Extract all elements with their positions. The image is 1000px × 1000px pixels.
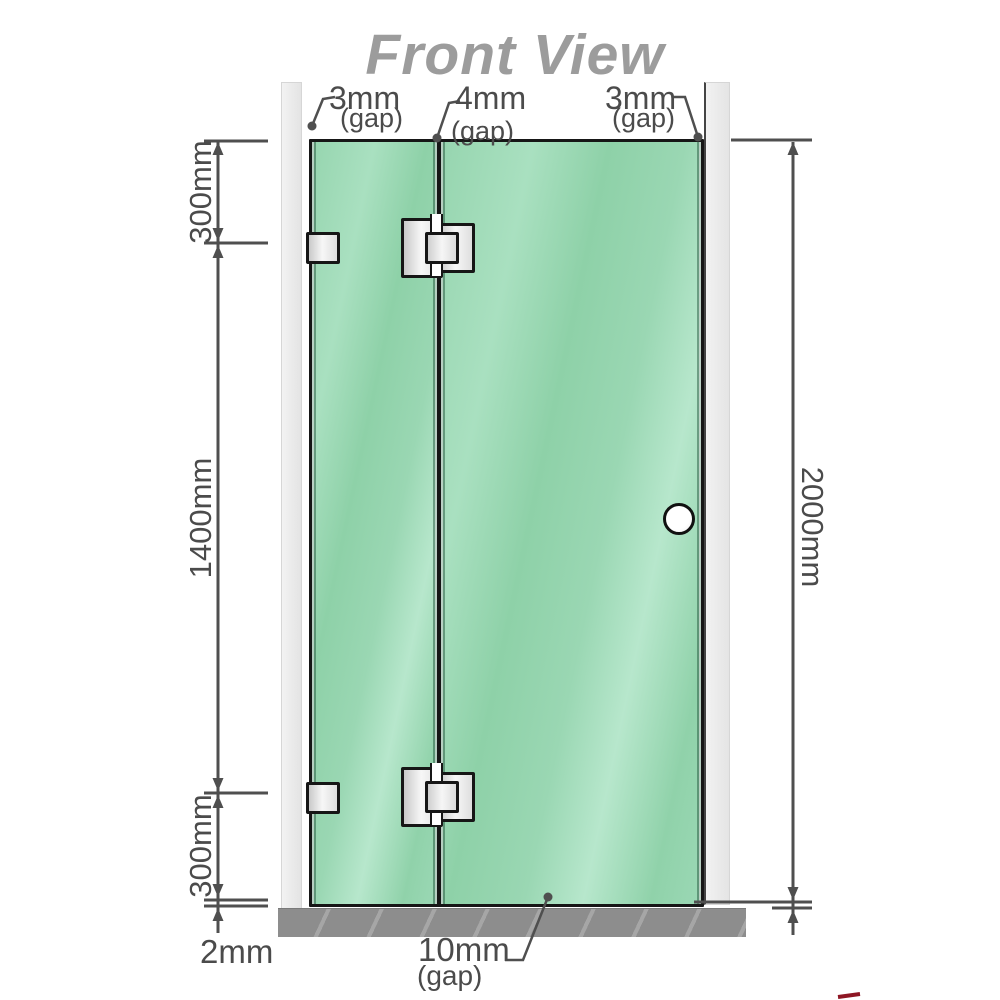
gap-label-middle-value: 4mm bbox=[455, 80, 526, 117]
dim-label-2000mm: 2000mm bbox=[797, 452, 827, 602]
dim-label-top-300mm: 300mm bbox=[186, 117, 216, 267]
gap-label-left-unit: (gap) bbox=[340, 103, 403, 134]
leader-lines bbox=[312, 97, 698, 960]
leader-dots bbox=[308, 122, 703, 902]
gap-label-bottom-unit: (gap) bbox=[417, 960, 482, 992]
dimension-arrowheads bbox=[213, 142, 799, 923]
front-view-diagram: Front View bbox=[0, 0, 1000, 1000]
dimension-lines bbox=[0, 0, 1000, 1000]
gap-label-right-unit: (gap) bbox=[612, 103, 675, 134]
dim-label-bottom-300mm: 300mm bbox=[186, 771, 216, 921]
dim-label-2mm: 2mm bbox=[200, 933, 273, 971]
gap-label-middle-unit: (gap) bbox=[451, 116, 514, 147]
dim-label-1400mm: 1400mm bbox=[186, 443, 216, 593]
red-watermark-mark bbox=[838, 994, 860, 997]
